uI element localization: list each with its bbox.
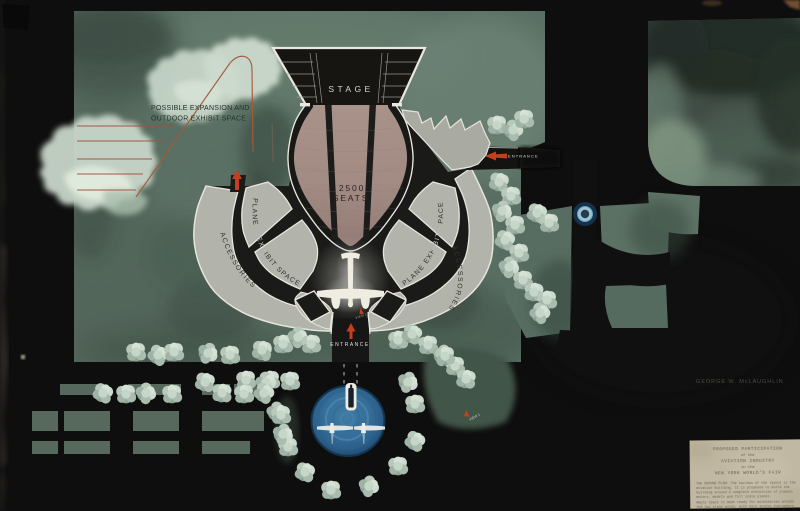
svg-text:NEW YORK WORLD'S FAIR: NEW YORK WORLD'S FAIR <box>715 470 781 477</box>
svg-text:OUTDOOR EXHIBIT SPACE: OUTDOOR EXHIBIT SPACE <box>151 116 246 123</box>
svg-text:STAGE: STAGE <box>328 84 373 94</box>
svg-text:2500: 2500 <box>339 183 365 193</box>
svg-text:in the: in the <box>741 465 755 470</box>
svg-text:PROPOSED PARTICIPATION: PROPOSED PARTICIPATION <box>713 446 783 453</box>
svg-text:motors, models and full scale: motors, models and full scale planes. <box>696 494 771 500</box>
svg-text:GEORGE W. McLAUGHLIN: GEORGE W. McLAUGHLIN <box>696 379 784 385</box>
svg-text:SEATS: SEATS <box>333 193 370 203</box>
svg-text:PLANE: PLANE <box>250 198 258 227</box>
svg-text:ENTRANCE: ENTRANCE <box>330 342 370 348</box>
svg-text:POSSIBLE EXPANSION AND: POSSIBLE EXPANSION AND <box>151 105 250 112</box>
svg-text:AVIATION INDUSTRY: AVIATION INDUSTRY <box>721 458 775 465</box>
svg-text:of the: of the <box>741 453 755 458</box>
svg-text:the two plane wings, with easy: the two plane wings, with easy access ev… <box>696 504 796 510</box>
svg-text:ENTRANCE: ENTRANCE <box>508 154 539 159</box>
